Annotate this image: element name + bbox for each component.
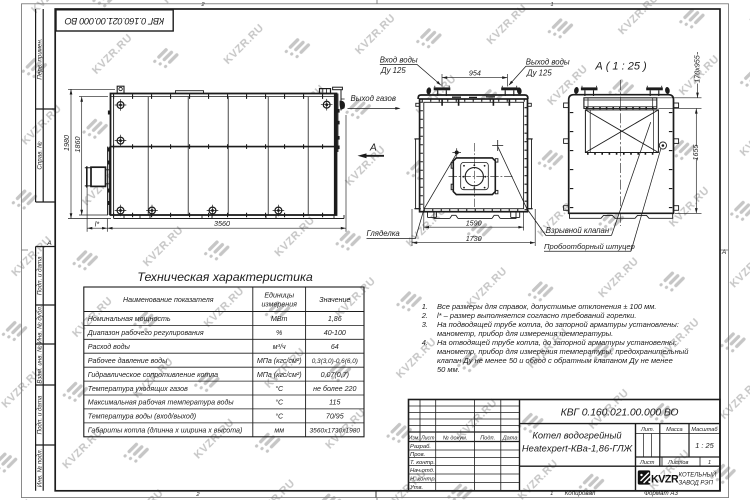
- svg-text:Лист: Лист: [639, 460, 655, 466]
- svg-text:70/95: 70/95: [326, 413, 344, 421]
- svg-text:Утв.: Утв.: [409, 485, 423, 491]
- svg-text:м³/ч: м³/ч: [273, 343, 286, 351]
- svg-text:Выход воды: Выход воды: [526, 57, 570, 66]
- svg-text:1860: 1860: [73, 137, 82, 153]
- svg-text:Гидравлическое сопротивление к: Гидравлическое сопротивление котла: [88, 371, 218, 379]
- svg-text:Н. контр.: Н. контр.: [410, 477, 436, 483]
- svg-text:l*: l*: [95, 219, 100, 228]
- svg-text:Масса: Масса: [666, 427, 683, 433]
- svg-text:МПа (кгс/см²): МПа (кгс/см²): [257, 357, 302, 365]
- svg-text:3.: 3.: [422, 320, 428, 329]
- svg-text:1730: 1730: [466, 234, 482, 243]
- svg-text:Дата: Дата: [502, 436, 518, 442]
- svg-text:КВГ 0.160.021.00.000 ВО: КВГ 0.160.021.00.000 ВО: [65, 16, 164, 26]
- svg-text:А: А: [369, 143, 377, 154]
- svg-text:64: 64: [331, 343, 339, 351]
- svg-text:Выход газов: Выход газов: [351, 94, 396, 103]
- svg-text:°С: °С: [275, 385, 284, 393]
- svg-text:На отводящей трубе котла, до з: На отводящей трубе котла, до запорной ар…: [437, 338, 677, 347]
- svg-text:Лит.: Лит.: [640, 427, 654, 433]
- svg-text:клапан Ду не менее 50 и обвод: клапан Ду не менее 50 и обвод с обратным…: [437, 356, 673, 365]
- svg-text:954: 954: [469, 69, 481, 78]
- svg-text:мм: мм: [274, 427, 284, 435]
- svg-text:3560х1730х1980: 3560х1730х1980: [309, 428, 360, 435]
- svg-text:Heatexpert-КВа-1,86-ГЛЖ: Heatexpert-КВа-1,86-ГЛЖ: [522, 442, 634, 453]
- svg-text:1655: 1655: [691, 144, 700, 161]
- svg-text:1: 1: [550, 2, 553, 8]
- svg-text:1980: 1980: [62, 135, 71, 151]
- svg-text:Нач.отд.: Нач.отд.: [410, 468, 434, 474]
- svg-text:Пробоотборный штуцер: Пробоотборный штуцер: [544, 242, 635, 251]
- svg-text:измерения: измерения: [261, 301, 297, 309]
- svg-text:Диапазон рабочего регулировани: Диапазон рабочего регулирования: [87, 329, 204, 337]
- svg-text:1: 1: [708, 460, 711, 466]
- svg-text:Перв. примен.: Перв. примен.: [37, 38, 44, 79]
- svg-text:115: 115: [329, 399, 340, 407]
- svg-text:Габариты котла (длинна х ширин: Габариты котла (длинна х ширина х высота…: [88, 427, 243, 435]
- svg-text:МВт: МВт: [271, 315, 288, 323]
- svg-text:Техническая характеристика: Техническая характеристика: [137, 270, 313, 284]
- svg-text:1,86: 1,86: [328, 315, 342, 323]
- svg-text:не более 220: не более 220: [313, 385, 356, 393]
- svg-text:Масштаб: Масштаб: [691, 427, 718, 433]
- svg-text:манометр, прибор для измерения: манометр, прибор для измерения температу…: [437, 329, 613, 338]
- svg-text:2.: 2.: [421, 311, 428, 320]
- svg-text:0,07(0,7): 0,07(0,7): [321, 371, 349, 379]
- svg-text:0,3(3,0)-0,6(6,0): 0,3(3,0)-0,6(6,0): [312, 358, 358, 365]
- svg-text:Инв. № дубл.: Инв. № дубл.: [37, 305, 44, 343]
- svg-text:Подп. и дата: Подп. и дата: [37, 256, 44, 295]
- svg-text:°С: °С: [275, 413, 284, 421]
- svg-text:МПа (кгс/см²): МПа (кгс/см²): [257, 371, 302, 379]
- svg-text:Все размеры для справок, допус: Все размеры для справок, допустимые откл…: [437, 302, 656, 311]
- svg-text:Значение: Значение: [319, 296, 350, 304]
- svg-text:Гляделка: Гляделка: [367, 229, 401, 238]
- svg-text:Разраб.: Разраб.: [410, 444, 431, 450]
- svg-text:1590: 1590: [466, 218, 482, 227]
- svg-text:1: 1: [550, 491, 553, 497]
- svg-text:Справ. №: Справ. №: [37, 141, 44, 169]
- svg-text:1.: 1.: [422, 302, 428, 311]
- svg-text:2: 2: [200, 2, 204, 8]
- svg-text:40-100: 40-100: [324, 329, 346, 337]
- svg-text:Номинальная мощность: Номинальная мощность: [88, 315, 171, 323]
- svg-text:Подп. и дата: Подп. и дата: [37, 395, 44, 434]
- svg-text:КВГ 0.160.021.00.000 ВО: КВГ 0.160.021.00.000 ВО: [561, 408, 679, 419]
- svg-text:°С: °С: [275, 399, 284, 407]
- svg-text:KVZR: KVZR: [651, 473, 679, 485]
- svg-text:170х955: 170х955: [692, 54, 701, 83]
- svg-text:Подп.: Подп.: [480, 436, 495, 442]
- svg-text:Изм.: Изм.: [409, 436, 420, 442]
- svg-text:%: %: [276, 329, 282, 337]
- svg-text:Ду 125: Ду 125: [526, 68, 552, 77]
- svg-text:Инв. № подл.: Инв. № подл.: [37, 449, 44, 487]
- svg-text:Расход воды: Расход воды: [88, 343, 131, 351]
- svg-text:Ду 125: Ду 125: [380, 66, 406, 75]
- svg-text:КОТЕЛЬНЫЙ: КОТЕЛЬНЫЙ: [679, 470, 717, 478]
- svg-text:Температура воды (вход/выход): Температура воды (вход/выход): [88, 413, 196, 421]
- svg-text:Рабочее давление воды: Рабочее давление воды: [88, 357, 168, 365]
- svg-text:ЗАВОД РЭП: ЗАВОД РЭП: [679, 481, 714, 487]
- svg-text:Наименование показателя: Наименование показателя: [123, 296, 214, 304]
- svg-text:3560: 3560: [214, 219, 230, 228]
- svg-text:Формат А3: Формат А3: [644, 490, 678, 497]
- svg-text:Максимальная рабочая температу: Максимальная рабочая температура воды: [88, 399, 235, 407]
- svg-text:Т. контр.: Т. контр.: [410, 460, 435, 466]
- svg-text:50 мм.: 50 мм.: [437, 365, 460, 374]
- svg-text:4.: 4.: [422, 338, 428, 347]
- svg-text:Листов: Листов: [667, 460, 688, 466]
- svg-text:На подводящей трубе котла, до: На подводящей трубе котла, до запорной а…: [437, 320, 679, 329]
- svg-text:Копировал: Копировал: [565, 490, 596, 497]
- svg-text:Единицы: Единицы: [264, 292, 295, 300]
- svg-text:Взам. инв. №: Взам. инв. №: [37, 345, 44, 384]
- svg-text:манометр, прибор для измерения: манометр, прибор для измерения температу…: [437, 347, 689, 356]
- svg-text:№ докум.: № докум.: [443, 436, 468, 442]
- svg-text:Взрывной клапан: Взрывной клапан: [546, 226, 610, 235]
- svg-text:1 : 25: 1 : 25: [695, 441, 714, 450]
- svg-text:А: А: [721, 249, 726, 256]
- svg-text:Котел водогрейный: Котел водогрейный: [532, 429, 622, 440]
- svg-text:Вход воды: Вход воды: [380, 56, 418, 65]
- svg-text:Температура уходящих газов: Температура уходящих газов: [88, 385, 188, 393]
- svg-text:А ( 1 : 25 ): А ( 1 : 25 ): [594, 61, 647, 73]
- svg-text:Пров.: Пров.: [410, 452, 425, 458]
- svg-text:Лист: Лист: [420, 436, 435, 442]
- svg-text:l* – размер выполняется соглас: l* – размер выполняется согласно требова…: [437, 311, 636, 320]
